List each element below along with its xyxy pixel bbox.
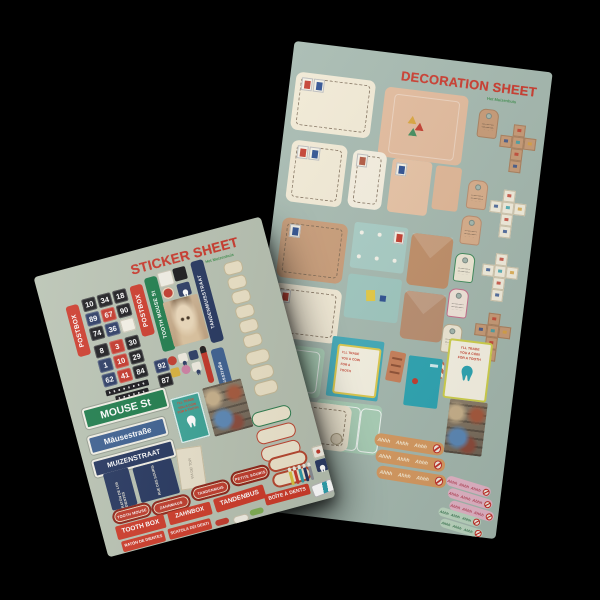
paper-slip-text: VIA DEI TOPI — [177, 447, 206, 490]
mini-sticker — [170, 367, 181, 378]
trade-card: I'LL TRADEYOU A COINFOR ATOOTH — [332, 343, 382, 398]
tag-hole — [449, 328, 456, 335]
pill-green — [249, 507, 264, 516]
corner-dot — [374, 256, 378, 260]
envelope-flap — [409, 233, 454, 261]
box-net-art — [491, 329, 495, 332]
house-number-a-tile-67: 67 — [100, 307, 117, 323]
toothbrush-mini-head — [297, 465, 301, 470]
ticket-text: Ahhh — [395, 439, 409, 447]
envelope-flap — [402, 290, 446, 317]
house-number-a-tile-90: 90 — [116, 302, 133, 318]
ticket-text: Ahhh — [439, 509, 449, 516]
corner-dot — [360, 230, 364, 234]
flag-panel — [343, 273, 402, 323]
postage-stamp-art — [299, 148, 306, 157]
corner-dot — [392, 258, 396, 262]
trade-card-line: I'LL TRADE — [342, 350, 360, 356]
house-number-b-tile-10: 10 — [113, 353, 130, 369]
box-net-art — [507, 194, 511, 197]
box-net-art — [513, 165, 517, 168]
ticket-text: Ahhh — [460, 493, 471, 501]
mint-box-net-panel — [356, 408, 382, 454]
ticket-text: Ahhh — [379, 469, 393, 477]
house-number-a-tile-74: 74 — [89, 325, 106, 341]
toothbrush-mini-head — [307, 462, 311, 467]
toothbrush-red-head — [199, 345, 207, 353]
house-number-a-tile-34: 34 — [96, 292, 113, 308]
kraft-square — [276, 217, 349, 285]
box-net-art — [498, 270, 502, 273]
box-net-panel — [490, 289, 503, 302]
envelope-cream — [290, 71, 376, 138]
tooth-icon — [179, 354, 187, 362]
house-number-b-tile-1: 1 — [97, 357, 114, 373]
ticket-text: Ahhh — [452, 524, 462, 531]
box-net-art — [492, 317, 496, 320]
diorama-photo — [444, 399, 488, 457]
ticket-text: Ahhh — [377, 436, 391, 444]
envelope-brown — [406, 233, 454, 290]
gift-tag — [476, 108, 499, 139]
decoration-sheet-subtitle: Het Muizenhuis — [487, 96, 517, 105]
tag-lines — [451, 303, 464, 310]
ticket-text: Ahhh — [447, 478, 458, 486]
house-number-b-tile-8: 8 — [93, 343, 110, 359]
ticket-text: Ahhh — [414, 442, 428, 450]
box-net-art — [499, 258, 503, 261]
mini-sticker — [188, 350, 199, 361]
house-number-a-tile-blank — [120, 317, 137, 333]
ticket-text: Ahhh — [463, 527, 473, 534]
postage-stamp — [289, 224, 302, 238]
ticket-text: Ahhh — [472, 497, 483, 505]
box-net-panel — [523, 138, 536, 151]
box-net-art — [496, 282, 500, 285]
no-entry-icon — [483, 500, 492, 509]
ticket-text: Ahhh — [473, 509, 484, 517]
box-net-panel — [513, 203, 526, 216]
postage-stamp — [313, 79, 326, 93]
terracotta-text-line — [392, 357, 402, 361]
postage-stamp — [393, 230, 406, 244]
tag-lines — [470, 195, 483, 202]
white-dash — [430, 364, 438, 368]
box-net-art — [495, 293, 499, 296]
corner-dot — [377, 232, 381, 236]
red-dot-sticker — [412, 378, 419, 385]
mini-sticker — [181, 364, 192, 375]
gift-tag — [466, 179, 489, 210]
seal-sticker — [161, 286, 176, 301]
envelope-brown — [399, 290, 447, 343]
photo-corner-panel — [349, 222, 408, 274]
postage-stamp-art — [303, 80, 310, 89]
no-entry-icon — [434, 476, 444, 486]
oval-label-petite-souris: PETITE SOURIS — [229, 463, 272, 488]
box-net-art — [528, 142, 532, 145]
ticket-text: Ahhh — [451, 513, 461, 520]
ticket-text: Ahhh — [462, 516, 472, 523]
flag-sticker — [366, 290, 375, 301]
box-net-art — [514, 153, 518, 156]
box-net-art — [502, 331, 506, 334]
trade-card-line: FOR A — [340, 362, 350, 367]
ticket-text: Ahhh — [415, 458, 429, 466]
ticket-text: Ahhh — [448, 490, 459, 498]
mini-square-sticker — [380, 295, 387, 302]
tooth-icon — [193, 363, 201, 371]
ticket-text: Ahhh — [450, 502, 461, 510]
letter-template — [285, 139, 348, 207]
box-net-panel — [508, 160, 521, 173]
tag-hole — [475, 184, 482, 191]
box-net-art — [504, 139, 508, 142]
toothbrush-mini-head — [302, 463, 306, 468]
ticket-text: Ahhh — [459, 481, 470, 489]
toothbrush-mini-head — [288, 467, 292, 472]
box-net-panel — [498, 326, 511, 339]
box-net-kraft — [496, 123, 538, 175]
postage-stamp-art — [311, 149, 318, 158]
tooth-trade-card: I'LL TRADEYOU A COINFOR A TOOTH — [442, 338, 493, 403]
box-net-art — [504, 218, 508, 221]
box-net-art — [516, 141, 520, 144]
house-number-b-tile-30: 30 — [124, 334, 141, 350]
scene: DECORATION SHEET Het Muizenhuis I'LL TRA… — [0, 0, 600, 600]
postage-stamp — [308, 147, 321, 161]
vertical-label-postbox: POSTBOX — [65, 304, 91, 358]
postage-stamp-art — [315, 81, 322, 90]
letter-template — [347, 149, 388, 211]
panel-tan — [431, 165, 462, 212]
pill-red — [215, 517, 230, 526]
card-peach — [387, 158, 433, 216]
ticket-text: Ahhh — [462, 506, 473, 514]
gift-tag — [459, 215, 482, 246]
pill-white — [232, 513, 250, 525]
teal-panel — [403, 355, 443, 409]
tooth-icon — [317, 459, 327, 470]
box-net-art — [506, 206, 510, 209]
box-net-art — [518, 208, 522, 211]
postage-stamp-art — [395, 233, 402, 242]
house-number-b-tile-62: 62 — [101, 372, 118, 388]
mouse-shop-photo — [202, 378, 254, 437]
ticket-text: Ahhh — [378, 453, 392, 461]
terracotta-text-line — [389, 371, 399, 375]
terracotta-stamp — [385, 350, 406, 383]
no-entry-icon — [472, 518, 480, 526]
postage-stamp — [356, 153, 369, 167]
box-net-panel — [505, 266, 518, 279]
no-entry-icon — [482, 487, 491, 496]
postage-stamp — [301, 77, 314, 91]
house-number-b-tile-29: 29 — [128, 349, 145, 365]
trade-card-panel: I'LL TRADEYOU A COINFOR ATOOTH — [326, 336, 385, 402]
tooth-icon — [183, 413, 199, 430]
tag-hole — [486, 113, 493, 120]
postage-stamp — [296, 145, 309, 159]
tag-lines — [464, 230, 477, 237]
box-net-art — [479, 328, 483, 331]
house-number-a-tile-18: 18 — [112, 288, 129, 304]
box-net-white — [478, 252, 520, 304]
tag-lines — [481, 123, 494, 130]
corner-dot — [357, 254, 361, 258]
tag-hole — [468, 220, 475, 227]
postage-stamp-art — [398, 165, 405, 174]
ticket-text: Ahhh — [397, 472, 411, 480]
envelope-peach-unfolded — [377, 86, 469, 166]
no-entry-icon — [433, 460, 443, 470]
box-label-bo-te-dents: BOÎTE À DENTS — [264, 483, 311, 506]
box-net-white — [486, 188, 528, 240]
terracotta-text-line — [391, 364, 401, 368]
house-number-b-tile-3: 3 — [109, 338, 126, 354]
postage-stamp-art — [291, 227, 298, 236]
house-number-a-tile-10: 10 — [81, 296, 98, 312]
no-entry-icon — [432, 444, 442, 454]
ticket-text: Ahhh — [470, 485, 481, 493]
tooth-mini-sticker — [177, 352, 188, 363]
box-net-panel — [498, 225, 511, 238]
tooth-icon — [179, 283, 189, 294]
house-number-a-tile-36: 36 — [104, 321, 121, 337]
box-net-art — [517, 129, 521, 132]
blank-label-small — [242, 332, 264, 349]
house-number-b-tile-41: 41 — [117, 367, 134, 383]
tooth-icon — [457, 363, 476, 383]
trade-card-line: TOOTH — [340, 368, 352, 373]
gift-tag — [453, 252, 476, 283]
toothbrush-mini-head — [292, 466, 296, 471]
ticket-text: Ahhh — [441, 520, 451, 527]
postage-stamp-art — [359, 156, 366, 165]
trade-card-line: YOU A COIN — [341, 356, 360, 362]
tooth-mini-sticker — [191, 361, 202, 372]
box-net-art — [486, 268, 490, 271]
blank-square-black — [172, 266, 188, 282]
gift-tag — [446, 288, 469, 319]
box-net-art — [510, 271, 514, 274]
tag-hole — [455, 292, 462, 299]
no-entry-icon — [474, 529, 482, 537]
house-number-b-tile-84: 84 — [132, 363, 149, 379]
tag-lines — [457, 268, 470, 275]
box-net-art — [494, 205, 498, 208]
box-net-art — [503, 230, 507, 233]
tag-hole — [462, 257, 469, 264]
house-number-a-tile-89: 89 — [85, 311, 102, 327]
ticket-text: Ahhh — [396, 456, 410, 464]
postage-stamp — [395, 162, 408, 176]
envelope-fold-line — [388, 93, 461, 161]
ticket-text: Ahhh — [416, 475, 430, 483]
no-entry-icon — [485, 512, 494, 521]
